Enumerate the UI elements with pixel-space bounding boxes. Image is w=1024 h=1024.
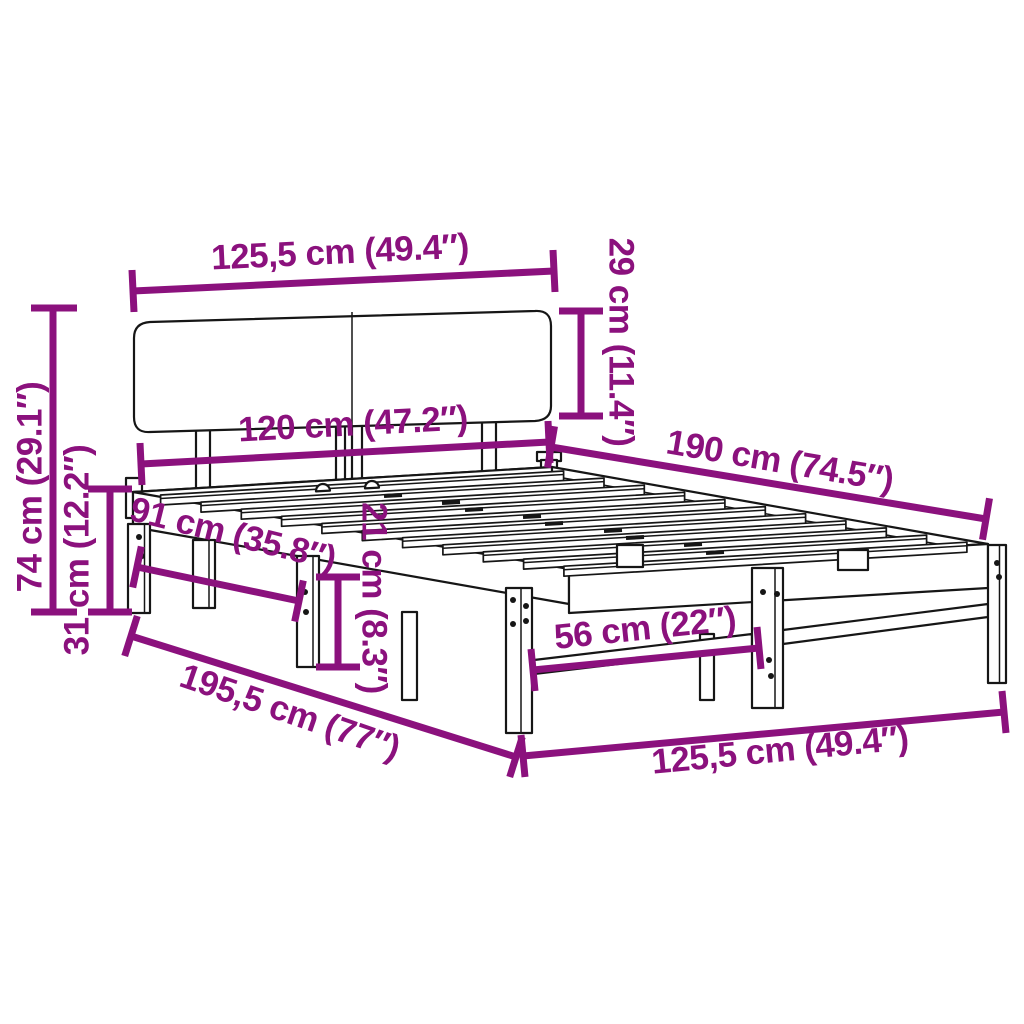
slat-joint	[706, 552, 724, 553]
support-block	[838, 550, 868, 570]
dim-under-bed-clearance-label: 21 cm (8.3″)	[355, 502, 394, 694]
screw-dot	[510, 621, 516, 627]
screw-dot	[303, 609, 309, 615]
dim-under-bed-clearance	[316, 577, 360, 667]
screw-dot	[996, 574, 1002, 580]
bed-leg	[402, 612, 417, 700]
support-block	[617, 545, 643, 567]
screw-dot	[774, 591, 780, 597]
slat-holder-knob	[316, 484, 330, 491]
slat-joint	[604, 530, 622, 531]
slat-joint	[545, 523, 563, 524]
screw-dot	[510, 597, 516, 603]
dim-total-width-label: 125,5 cm (49.4″)	[650, 718, 910, 782]
stretcher-bar	[783, 604, 988, 644]
dim-headboard-height	[559, 311, 603, 416]
screw-dot	[994, 560, 1000, 566]
screw-dot	[768, 673, 774, 679]
dim-base-height-label: 31 cm (12.2″)	[58, 445, 97, 656]
product-dimension-diagram: 125,5 cm (49.4″) 29 cm (11.4″) 74 cm (29…	[0, 0, 1024, 1024]
screw-dot	[766, 657, 772, 663]
screw-dot	[136, 534, 142, 540]
slat-joint	[384, 495, 402, 496]
slat-holder-knob	[365, 481, 379, 488]
slat-joint	[626, 537, 644, 538]
slat-joint	[465, 509, 483, 510]
screw-dot	[523, 603, 529, 609]
dim-headboard-height-label: 29 cm (11.4″)	[602, 238, 641, 447]
bed-leg	[193, 540, 215, 608]
slat-joint	[442, 502, 460, 503]
bed-leg	[506, 588, 532, 733]
slat-joint	[523, 516, 541, 517]
dim-total-length	[125, 616, 523, 777]
dim-headboard-width-label: 125,5 cm (49.4″)	[210, 226, 469, 277]
dim-total-height-label: 74 cm (29.1″)	[11, 382, 50, 593]
slat-joint	[684, 544, 702, 545]
bed-frame-diagram: 125,5 cm (49.4″) 29 cm (11.4″) 74 cm (29…	[0, 0, 1024, 1024]
screw-dot	[523, 618, 529, 624]
screw-dot	[760, 589, 766, 595]
